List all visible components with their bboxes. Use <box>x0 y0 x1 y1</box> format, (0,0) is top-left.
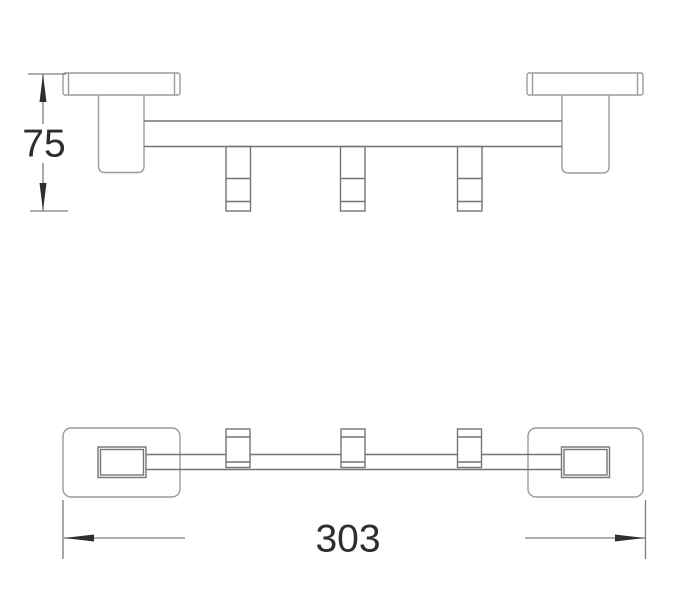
side-elevation-view <box>63 73 643 211</box>
dimension-length-label: 303 <box>315 518 380 561</box>
plan-view <box>63 428 643 497</box>
plan-left-backplate <box>63 428 180 497</box>
plan-right-post-outer <box>562 447 610 478</box>
plan-left-post-section <box>98 447 146 478</box>
dimension-height-arrow-down-icon <box>40 183 47 211</box>
dimension-height-label: 75 <box>22 123 65 166</box>
drawing-canvas: 75 303 <box>0 0 684 600</box>
plan-right-backplate <box>528 428 643 497</box>
plan-right-post-inner <box>564 450 607 476</box>
side-left-post <box>99 95 145 173</box>
plan-left-post-inner <box>101 450 144 476</box>
side-right-wall-plate <box>527 73 643 95</box>
dimension-length-arrow-left-icon <box>64 535 94 542</box>
plan-left-post-outer <box>98 447 146 478</box>
dimension-height-arrow-up-icon <box>40 74 47 102</box>
side-hook-2 <box>341 147 366 212</box>
side-hook-1 <box>226 147 251 212</box>
side-right-post <box>562 95 609 173</box>
plan-hook-3 <box>458 429 482 468</box>
dimension-length-arrow-right-icon <box>615 535 645 542</box>
plan-right-post-section <box>562 447 610 478</box>
side-hook-3 <box>458 147 483 212</box>
technical-drawing: 75 303 <box>0 0 684 600</box>
plan-hooks <box>226 429 482 468</box>
side-left-wall-plate <box>63 73 180 95</box>
side-rail-and-hooks <box>144 121 562 211</box>
plan-hook-2 <box>341 429 365 468</box>
plan-hook-1 <box>226 429 250 468</box>
